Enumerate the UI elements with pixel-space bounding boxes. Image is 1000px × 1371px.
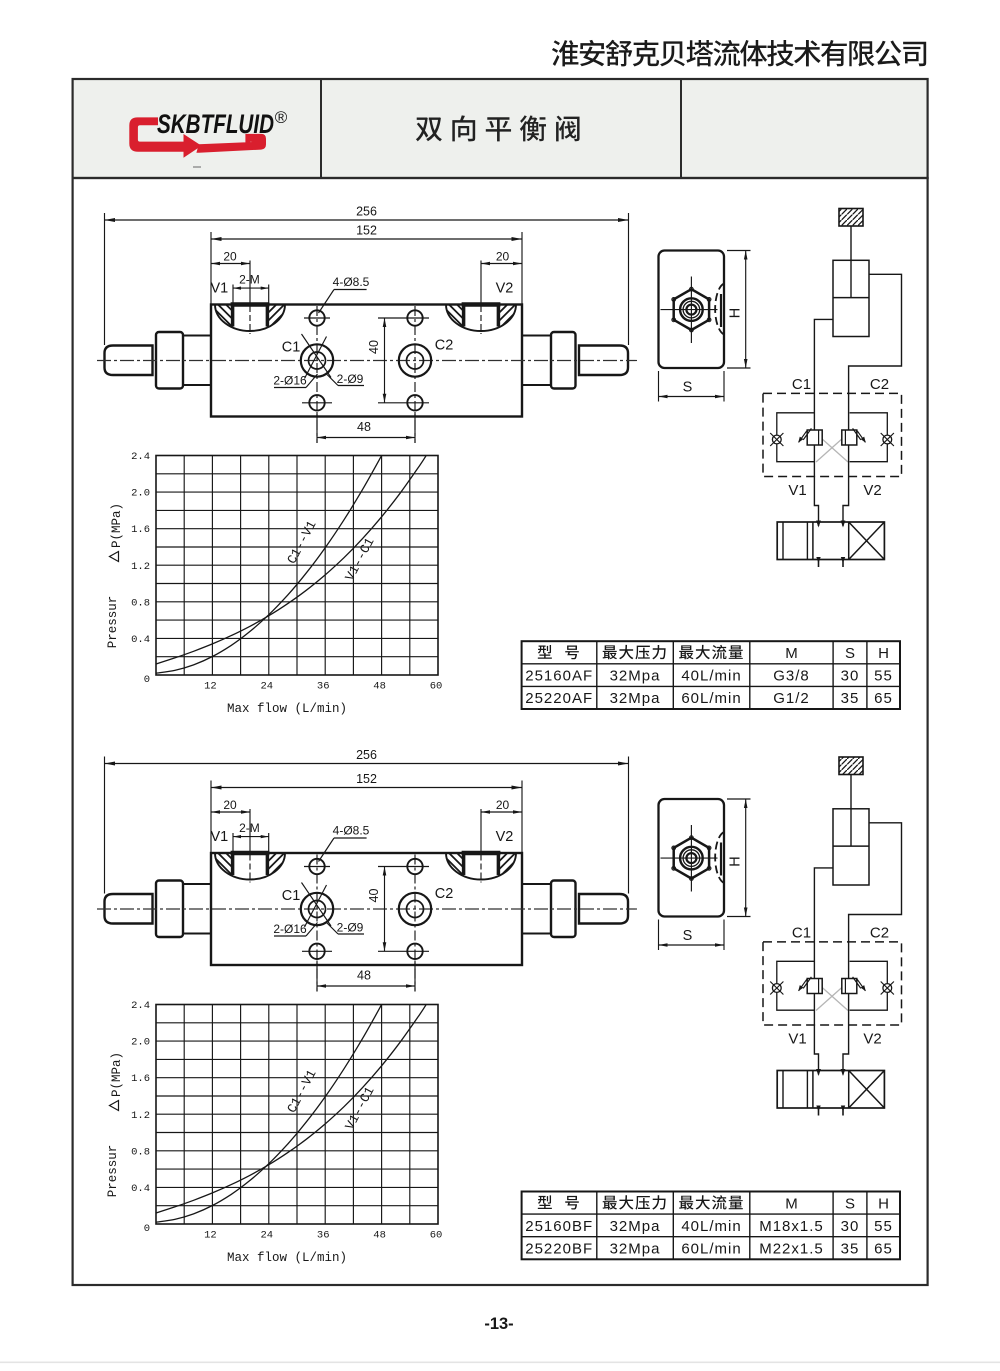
svg-text:32Mpa: 32Mpa bbox=[610, 1241, 661, 1258]
svg-text:25160BF: 25160BF bbox=[525, 1218, 593, 1235]
svg-text:H: H bbox=[728, 308, 744, 318]
svg-text:S: S bbox=[845, 1196, 855, 1213]
svg-text:G1/2: G1/2 bbox=[773, 690, 810, 707]
svg-text:32Mpa: 32Mpa bbox=[610, 690, 661, 707]
svg-text:P(MPa): P(MPa) bbox=[110, 503, 124, 548]
svg-text:Pressur: Pressur bbox=[106, 596, 120, 649]
svg-text:H: H bbox=[878, 1196, 889, 1213]
svg-text:40: 40 bbox=[367, 889, 381, 903]
svg-text:48: 48 bbox=[357, 420, 371, 434]
svg-text:35: 35 bbox=[841, 1241, 860, 1258]
svg-text:2-M: 2-M bbox=[239, 821, 260, 835]
svg-text:C2: C2 bbox=[435, 338, 454, 354]
svg-text:30: 30 bbox=[841, 668, 860, 685]
svg-text:0.4: 0.4 bbox=[131, 1183, 150, 1195]
svg-text:2.4: 2.4 bbox=[131, 1000, 150, 1012]
svg-text:4-Ø8.5: 4-Ø8.5 bbox=[333, 275, 370, 289]
svg-text:65: 65 bbox=[874, 1241, 893, 1258]
svg-text:V1: V1 bbox=[211, 281, 229, 297]
svg-text:0.8: 0.8 bbox=[131, 597, 150, 609]
svg-text:65: 65 bbox=[874, 690, 893, 707]
svg-text:256: 256 bbox=[356, 748, 377, 762]
svg-text:V1: V1 bbox=[788, 482, 806, 499]
svg-text:36: 36 bbox=[317, 1230, 330, 1242]
svg-text:60L/min: 60L/min bbox=[681, 690, 741, 707]
svg-text:32Mpa: 32Mpa bbox=[610, 1218, 661, 1235]
svg-text:M18x1.5: M18x1.5 bbox=[759, 1218, 824, 1235]
svg-text:2-Ø9: 2-Ø9 bbox=[337, 921, 364, 935]
svg-text:M22x1.5: M22x1.5 bbox=[759, 1241, 824, 1258]
svg-text:2.0: 2.0 bbox=[131, 488, 150, 500]
svg-text:20: 20 bbox=[223, 798, 237, 812]
svg-text:25220AF: 25220AF bbox=[525, 690, 593, 707]
svg-text:1.2: 1.2 bbox=[131, 1110, 150, 1122]
svg-text:40L/min: 40L/min bbox=[681, 1218, 741, 1235]
svg-text:35: 35 bbox=[841, 690, 860, 707]
svg-text:60L/min: 60L/min bbox=[681, 1241, 741, 1258]
svg-text:55: 55 bbox=[874, 1218, 893, 1235]
svg-text:32Mpa: 32Mpa bbox=[610, 668, 661, 685]
svg-text:2.0: 2.0 bbox=[131, 1037, 150, 1049]
svg-text:0.4: 0.4 bbox=[131, 634, 150, 646]
svg-text:S: S bbox=[845, 645, 855, 662]
svg-text:H: H bbox=[878, 645, 889, 662]
svg-text:20: 20 bbox=[496, 250, 510, 264]
svg-text:C2: C2 bbox=[435, 886, 454, 902]
svg-text:V1: V1 bbox=[788, 1031, 806, 1048]
svg-text:40: 40 bbox=[367, 340, 381, 354]
svg-text:M: M bbox=[785, 645, 798, 662]
svg-text:152: 152 bbox=[356, 772, 377, 786]
svg-text:C2: C2 bbox=[870, 925, 889, 942]
svg-text:H: H bbox=[728, 856, 744, 866]
svg-text:®: ® bbox=[275, 108, 288, 127]
svg-text:V1: V1 bbox=[211, 829, 229, 845]
svg-text:C1: C1 bbox=[792, 925, 811, 942]
svg-text:P(MPa): P(MPa) bbox=[110, 1052, 124, 1097]
svg-text:0.8: 0.8 bbox=[131, 1146, 150, 1158]
svg-text:4-Ø8.5: 4-Ø8.5 bbox=[333, 824, 370, 838]
svg-text:1.6: 1.6 bbox=[131, 1073, 150, 1085]
svg-text:256: 256 bbox=[356, 205, 377, 219]
svg-text:20: 20 bbox=[223, 250, 237, 264]
svg-text:Max flow (L/min): Max flow (L/min) bbox=[227, 702, 347, 716]
svg-text:60: 60 bbox=[430, 1230, 443, 1242]
svg-text:S: S bbox=[683, 928, 693, 944]
svg-text:V2: V2 bbox=[496, 281, 514, 297]
svg-text:40L/min: 40L/min bbox=[681, 668, 741, 685]
svg-text:12: 12 bbox=[204, 681, 217, 693]
svg-text:-13-: -13- bbox=[484, 1315, 513, 1333]
svg-text:36: 36 bbox=[317, 681, 330, 693]
svg-text:1.6: 1.6 bbox=[131, 524, 150, 536]
svg-text:20: 20 bbox=[496, 798, 510, 812]
svg-text:30: 30 bbox=[841, 1218, 860, 1235]
svg-text:2-M: 2-M bbox=[239, 273, 260, 287]
svg-text:2-Ø9: 2-Ø9 bbox=[337, 372, 364, 386]
svg-text:24: 24 bbox=[260, 681, 273, 693]
svg-text:0: 0 bbox=[144, 674, 150, 686]
svg-text:48: 48 bbox=[357, 969, 371, 983]
svg-text:V2: V2 bbox=[496, 829, 514, 845]
svg-text:2-Ø16: 2-Ø16 bbox=[273, 922, 307, 936]
svg-text:2.4: 2.4 bbox=[131, 451, 150, 463]
svg-text:V2: V2 bbox=[863, 1031, 881, 1048]
svg-text:C1: C1 bbox=[282, 888, 301, 904]
svg-text:25220BF: 25220BF bbox=[525, 1241, 593, 1258]
svg-text:12: 12 bbox=[204, 1230, 217, 1242]
svg-text:48: 48 bbox=[373, 681, 386, 693]
svg-text:V2: V2 bbox=[863, 482, 881, 499]
svg-text:S: S bbox=[683, 380, 693, 396]
svg-text:1.2: 1.2 bbox=[131, 561, 150, 573]
svg-text:C2: C2 bbox=[870, 376, 889, 393]
svg-text:55: 55 bbox=[874, 668, 893, 685]
svg-text:0: 0 bbox=[144, 1223, 150, 1235]
svg-text:G3/8: G3/8 bbox=[773, 668, 810, 685]
svg-text:48: 48 bbox=[373, 1230, 386, 1242]
svg-text:Pressur: Pressur bbox=[106, 1145, 120, 1198]
svg-text:2-Ø16: 2-Ø16 bbox=[273, 374, 307, 388]
svg-text:Max flow (L/min): Max flow (L/min) bbox=[227, 1251, 347, 1265]
svg-text:25160AF: 25160AF bbox=[525, 668, 593, 685]
svg-text:M: M bbox=[785, 1196, 798, 1213]
svg-text:152: 152 bbox=[356, 224, 377, 238]
svg-text:C1: C1 bbox=[282, 340, 301, 356]
svg-text:24: 24 bbox=[260, 1230, 273, 1242]
svg-text:C1: C1 bbox=[792, 376, 811, 393]
svg-text:60: 60 bbox=[430, 681, 443, 693]
